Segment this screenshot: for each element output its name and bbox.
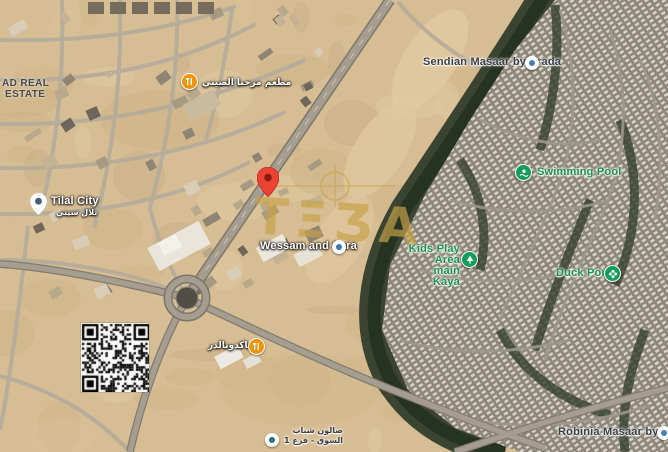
mcdonalds-label[interactable]: ماكدونالدز bbox=[208, 341, 254, 351]
poi-dot-icon bbox=[269, 437, 275, 443]
fork-knife-icon bbox=[185, 77, 194, 86]
swimming-pool-label[interactable]: Swimming Pool bbox=[537, 166, 622, 178]
salon-marker[interactable] bbox=[265, 433, 279, 447]
selected-location-pin[interactable] bbox=[257, 167, 279, 197]
sendian-marker[interactable] bbox=[525, 56, 539, 70]
tilal-city-marker[interactable] bbox=[30, 193, 47, 215]
tilal-city-label[interactable]: Tilal City bbox=[51, 195, 99, 207]
robinia-label[interactable]: Robinia Masaar by Arada bbox=[558, 426, 668, 438]
fork-knife-icon bbox=[252, 342, 261, 351]
mcdonalds-marker[interactable] bbox=[248, 338, 265, 355]
restaurant-label[interactable]: مطعم مرحبا الصيني bbox=[202, 78, 291, 88]
flower-icon bbox=[608, 269, 618, 279]
restaurant-marker[interactable] bbox=[181, 73, 198, 90]
poi-dot-icon bbox=[661, 430, 667, 436]
kids-play-area-marker[interactable] bbox=[461, 251, 478, 268]
map-viewport[interactable]: TΞƷA AD REAL ESTATE مطعم مرحبا الصيني Ti… bbox=[0, 0, 668, 452]
tree-icon bbox=[465, 255, 475, 265]
poi-dot-icon bbox=[336, 244, 342, 250]
tilal-city-label-ar[interactable]: تلال سيتي bbox=[56, 208, 97, 217]
sendian-label[interactable]: Sendian Masaar by Arada bbox=[423, 56, 561, 68]
salon-label[interactable]: صالون شباب السوق - فرع 1 bbox=[284, 426, 343, 446]
poi-dot-icon bbox=[529, 60, 535, 66]
duck-pond-marker[interactable] bbox=[604, 265, 621, 282]
swimmer-icon bbox=[519, 168, 529, 178]
district-label: AD REAL ESTATE bbox=[2, 78, 49, 100]
wessam-and-sara-marker[interactable] bbox=[332, 240, 346, 254]
qr-code bbox=[81, 323, 149, 392]
swimming-pool-marker[interactable] bbox=[515, 164, 532, 181]
robinia-marker[interactable] bbox=[657, 426, 668, 440]
kids-play-area-label[interactable]: Kids Play Area main Kaya bbox=[404, 244, 460, 288]
